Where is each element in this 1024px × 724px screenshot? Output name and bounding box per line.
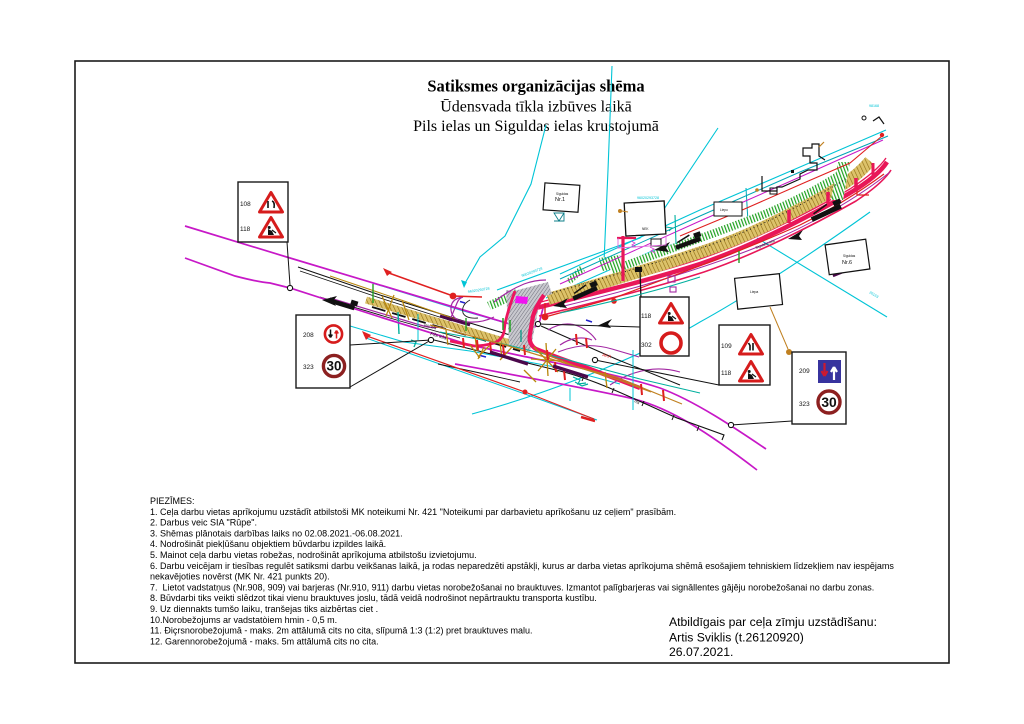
svg-text:6. Darbu veicējam ir tiesības: 6. Darbu veicējam ir tiesības regulēt sa… — [150, 561, 894, 571]
svg-text:109: 109 — [721, 343, 732, 350]
svg-text:118: 118 — [240, 226, 251, 233]
svg-text:12. Garennorobežojumā - maks.: 12. Garennorobežojumā - maks. 5m attālum… — [150, 636, 379, 646]
svg-text:Nr.6: Nr.6 — [842, 260, 852, 266]
svg-text:Siguldas: Siguldas — [556, 192, 569, 196]
svg-text:Liepu: Liepu — [720, 208, 728, 212]
svg-text:PIEZĪMES:: PIEZĪMES: — [150, 496, 195, 506]
svg-text:9. Uz diennakts tumšo laiku, t: 9. Uz diennakts tumšo laiku, tranšejas t… — [150, 604, 378, 614]
svg-text:Liepa: Liepa — [750, 290, 758, 294]
svg-text:4. Nodrošināt piekļūšanu objek: 4. Nodrošināt piekļūšanu objektiem būvda… — [150, 539, 386, 549]
svg-text:Siguldas: Siguldas — [843, 254, 856, 258]
svg-text:7. Lietot vadstatņus (Nr.908,: 7. Lietot vadstatņus (Nr.908, 909) vai b… — [150, 582, 874, 592]
svg-text:98168: 98168 — [869, 104, 879, 108]
svg-text:Ūdensvada tīkla izbūves laikā: Ūdensvada tīkla izbūves laikā — [440, 99, 632, 116]
svg-text:3. Shēmas plānotais darbības l: 3. Shēmas plānotais darbības laiks no 02… — [150, 528, 403, 538]
svg-text:323: 323 — [799, 401, 810, 408]
svg-text:8. Būvdarbi tiks veikti slēdzo: 8. Būvdarbi tiks veikti slēdzot tikai vi… — [150, 593, 597, 603]
svg-text:30: 30 — [327, 359, 342, 374]
svg-text:Artis Sviklis (t.26120920): Artis Sviklis (t.26120920) — [669, 631, 804, 645]
svg-text:Nr.1: Nr.1 — [555, 197, 565, 203]
svg-text:209: 209 — [799, 368, 810, 375]
svg-text:Satiksmes organizācijas shēma: Satiksmes organizācijas shēma — [427, 77, 644, 96]
svg-text:10.Norobežojums ar vadstatòiem: 10.Norobežojums ar vadstatòiem hmin - 0,… — [150, 615, 337, 625]
svg-text:118: 118 — [641, 313, 652, 320]
svg-text:nekavējoties novērst (MK Nr. 4: nekavējoties novērst (MK Nr. 421 punkts … — [150, 572, 330, 582]
svg-text:118: 118 — [721, 370, 732, 377]
svg-text:1. Ceļa darbu vietas aprīkojum: 1. Ceļa darbu vietas aprīkojumu uzstādīt… — [150, 507, 676, 517]
svg-text:11. Ðiçrsnorobežojumā - maks.: 11. Ðiçrsnorobežojumā - maks. 2m attālum… — [150, 626, 533, 636]
svg-text:5. Mainot ceļa darbu vietas ro: 5. Mainot ceļa darbu vietas robežas, nod… — [150, 550, 477, 560]
svg-text:Pils ielas un Siguldas ielas k: Pils ielas un Siguldas ielas krustojumā — [413, 118, 659, 135]
svg-text:96020293728: 96020293728 — [637, 196, 659, 200]
svg-text:NEK: NEK — [642, 227, 649, 231]
svg-text:30: 30 — [821, 395, 837, 410]
svg-text:323: 323 — [303, 364, 314, 371]
svg-text:108: 108 — [240, 201, 251, 208]
svg-text:302: 302 — [641, 342, 652, 349]
svg-text:2. Darbus veic SIA "Rūpe".: 2. Darbus veic SIA "Rūpe". — [150, 518, 257, 528]
svg-text:208: 208 — [303, 332, 314, 339]
svg-text:26.07.2021.: 26.07.2021. — [669, 645, 733, 659]
svg-text:Atbildīgais par ceļa zīmju uzs: Atbildīgais par ceļa zīmju uzstādīšanu: — [669, 615, 877, 629]
